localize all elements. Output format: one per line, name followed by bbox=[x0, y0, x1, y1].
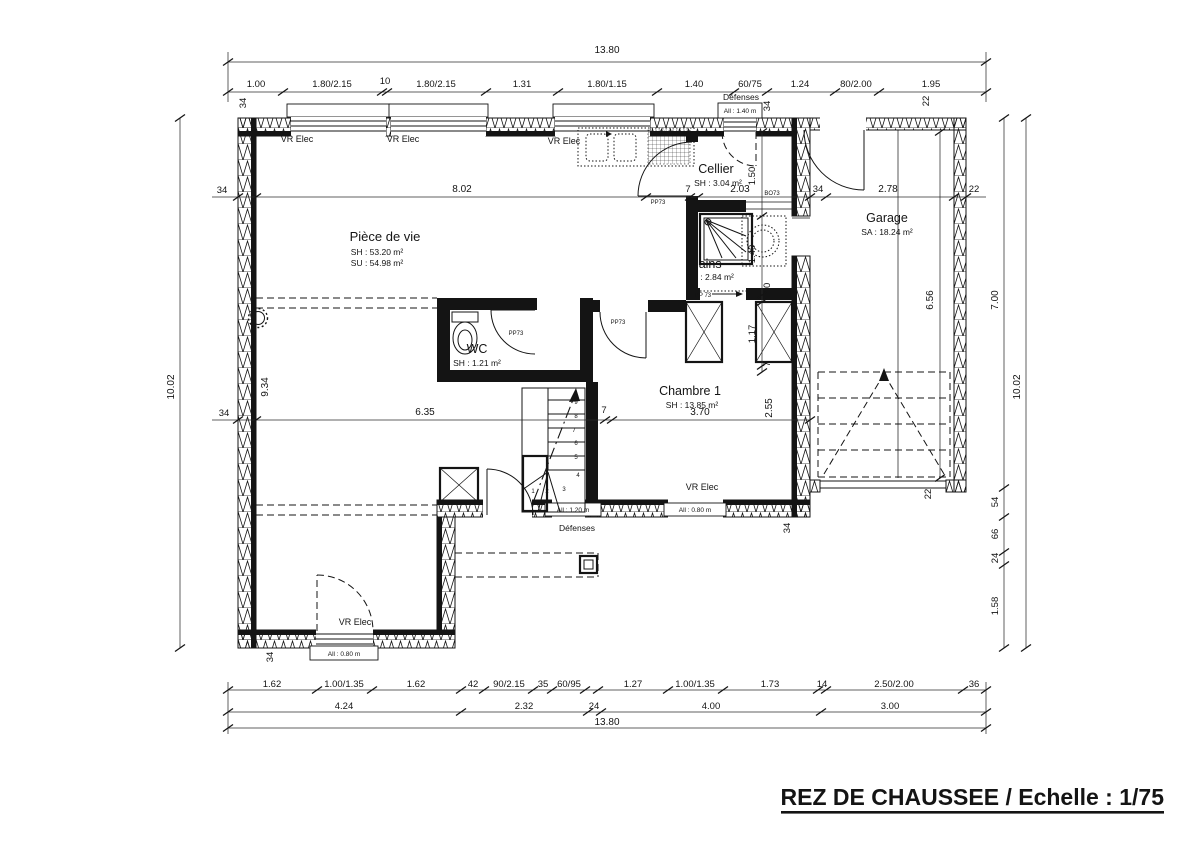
dim-label: 1.80/2.15 bbox=[312, 79, 352, 90]
room-area: SH : 1.21 m² bbox=[453, 358, 501, 368]
shutter-label: VR Elec bbox=[387, 134, 420, 144]
dim-label: 34 bbox=[219, 408, 230, 419]
room-labels: Pièce de vie SH : 53.20 m² SU : 54.98 m²… bbox=[350, 162, 913, 410]
dim-label: 1.95 bbox=[922, 79, 941, 90]
sill-height-label: All : 0.80 m bbox=[328, 651, 361, 658]
room-label-piece-de-vie: Pièce de vie SH : 53.20 m² SU : 54.98 m² bbox=[350, 229, 421, 268]
dim-label: 10 bbox=[762, 283, 773, 294]
dim-label: 36 bbox=[969, 679, 980, 690]
sill-height-label: All : 1.20 m bbox=[557, 507, 590, 514]
stair-step-number: 7 bbox=[572, 428, 576, 434]
dim-label: 42 bbox=[468, 679, 479, 690]
room-area: SU : 54.98 m² bbox=[351, 258, 404, 268]
stair-step-number: 2 bbox=[545, 489, 549, 495]
window-sill bbox=[287, 104, 390, 117]
dim-label: 1.27 bbox=[624, 679, 643, 690]
sill-height-label: All : 1.40 m bbox=[724, 108, 757, 115]
dim-label: 1.73 bbox=[761, 679, 780, 690]
dim-label: 60/75 bbox=[738, 79, 762, 90]
dim-label: 8.02 bbox=[452, 184, 472, 195]
shutter-label: VR Elec bbox=[281, 134, 314, 144]
dim-label: 22 bbox=[921, 96, 932, 107]
dim-label: 90/2.15 bbox=[493, 679, 525, 690]
dim-label: 2.32 bbox=[515, 701, 534, 712]
dim-label: 34 bbox=[265, 652, 276, 663]
dim-label: 3.00 bbox=[881, 701, 900, 712]
dim-label: 4.24 bbox=[335, 701, 354, 712]
stair-step-number: 4 bbox=[576, 473, 580, 479]
room-area: SH : 13.85 m² bbox=[666, 400, 719, 410]
dim-label: 1.17 bbox=[747, 325, 758, 344]
stair-step-number: 1 bbox=[531, 489, 535, 495]
room-name: Bains bbox=[690, 257, 721, 271]
door-ref-label: PP73 bbox=[651, 200, 666, 206]
dim-label: 1.40 bbox=[747, 245, 758, 264]
room-area: SH : 53.20 m² bbox=[351, 247, 404, 257]
room-area: SH : 3.04 m² bbox=[694, 178, 742, 188]
dim-label: 24 bbox=[990, 553, 1001, 564]
room-name: Pièce de vie bbox=[350, 229, 421, 244]
sill-height-label: All : 0.80 m bbox=[679, 507, 712, 514]
dim-label: 80/2.00 bbox=[840, 79, 872, 90]
dim-label: 22 bbox=[969, 184, 980, 195]
dim-label: 7 bbox=[685, 184, 690, 195]
windows bbox=[287, 103, 946, 660]
dim-label: 2.78 bbox=[878, 184, 898, 195]
dim-label: 1.40 bbox=[685, 79, 704, 90]
dim-label: 34 bbox=[762, 101, 773, 112]
dim-label: 7.00 bbox=[990, 290, 1001, 310]
shutter-label: VR Elec bbox=[548, 136, 581, 146]
dim-label: 34 bbox=[782, 523, 793, 534]
room-area: SA : 18.24 m² bbox=[861, 227, 913, 237]
dim-label: 1.00/1.35 bbox=[324, 679, 364, 690]
dim-label: 7 bbox=[601, 405, 606, 416]
exterior-walls bbox=[238, 118, 966, 648]
closet bbox=[440, 302, 792, 502]
dim-label: 1.62 bbox=[263, 679, 282, 690]
dim-bottom-total: 13.80 bbox=[594, 717, 619, 728]
drawing-title: REZ DE CHAUSSEE / Echelle : 1/75 bbox=[781, 784, 1165, 810]
dim-label: 2.55 bbox=[764, 398, 775, 418]
dim-label: 1.00/1.35 bbox=[675, 679, 715, 690]
dim-label: 6.35 bbox=[415, 407, 435, 418]
dim-label: 4.00 bbox=[702, 701, 721, 712]
dim-label: 54 bbox=[990, 497, 1001, 508]
dim-label: 35 bbox=[538, 679, 549, 690]
room-name: Garage bbox=[866, 211, 908, 225]
dim-label: 1.50 bbox=[747, 167, 758, 186]
shutter-label: VR Elec bbox=[686, 482, 719, 492]
dim-label: 1.62 bbox=[407, 679, 426, 690]
dim-label: 1.24 bbox=[791, 79, 810, 90]
title-block: REZ DE CHAUSSEE / Echelle : 1/75 bbox=[781, 784, 1165, 814]
room-name: WC bbox=[467, 342, 488, 356]
room-name: Chambre 1 bbox=[659, 384, 721, 398]
dim-left-total: 10.02 bbox=[166, 374, 177, 399]
room-area: SH : 2.84 m² bbox=[686, 272, 734, 282]
porch bbox=[455, 553, 598, 577]
door-ref-label: PP73 bbox=[611, 320, 626, 326]
defenses-label: Défenses bbox=[723, 92, 759, 102]
dim-label: 24 bbox=[589, 701, 600, 712]
dim-label: 34 bbox=[813, 184, 824, 195]
dim-label: 2.50/2.00 bbox=[874, 679, 914, 690]
dim-label: 34 bbox=[217, 185, 228, 196]
room-label-garage: Garage SA : 18.24 m² bbox=[861, 211, 913, 237]
stair-step-number: 8 bbox=[574, 414, 578, 420]
dim-left-inner: 9.34 bbox=[260, 377, 271, 397]
shutter-label: VR Elec bbox=[339, 617, 372, 627]
room-label-bains: Bains SH : 2.84 m² bbox=[686, 257, 734, 282]
floor-plan-page: 13.80 1.00 1.80/2.15 10 1.80/2.15 1.31 1… bbox=[0, 0, 1200, 848]
room-label-chambre: Chambre 1 SH : 13.85 m² bbox=[659, 384, 721, 410]
dim-label: 10.02 bbox=[1012, 374, 1023, 399]
door-ref-label: PP 73 bbox=[695, 293, 712, 299]
dim-label: 1.80/2.15 bbox=[416, 79, 456, 90]
dim-label: 10 bbox=[380, 76, 391, 87]
dim-label: 1.31 bbox=[513, 79, 532, 90]
room-label-cellier: Cellier SH : 3.04 m² bbox=[694, 162, 742, 188]
stair-step-number: 3 bbox=[562, 487, 566, 493]
title-underline bbox=[781, 811, 1164, 814]
dim-label: 7 bbox=[762, 361, 773, 366]
dim-label: 1.58 bbox=[990, 597, 1001, 616]
sliding-door-arrow: PP 73 bbox=[695, 291, 743, 299]
dim-label: 14 bbox=[817, 679, 828, 690]
room-name: Cellier bbox=[698, 162, 733, 176]
dim-label: 22 bbox=[923, 489, 934, 500]
door-ref-label: PP73 bbox=[509, 331, 524, 337]
dim-label: 1.80/1.15 bbox=[587, 79, 627, 90]
room-label-wc: WC SH : 1.21 m² bbox=[453, 342, 501, 368]
dim-label: 6.56 bbox=[925, 290, 936, 310]
dim-label: 34 bbox=[238, 98, 249, 109]
dim-label: 60/95 bbox=[557, 679, 581, 690]
floor-plan: 13.80 1.00 1.80/2.15 10 1.80/2.15 1.31 1… bbox=[0, 0, 1200, 848]
dim-top-total: 13.80 bbox=[594, 45, 619, 56]
dim-label: 1.00 bbox=[247, 79, 266, 90]
defenses-label: Défenses bbox=[559, 523, 595, 533]
door-ref-label: BO73 bbox=[764, 191, 780, 197]
dim-label: 66 bbox=[990, 529, 1001, 540]
